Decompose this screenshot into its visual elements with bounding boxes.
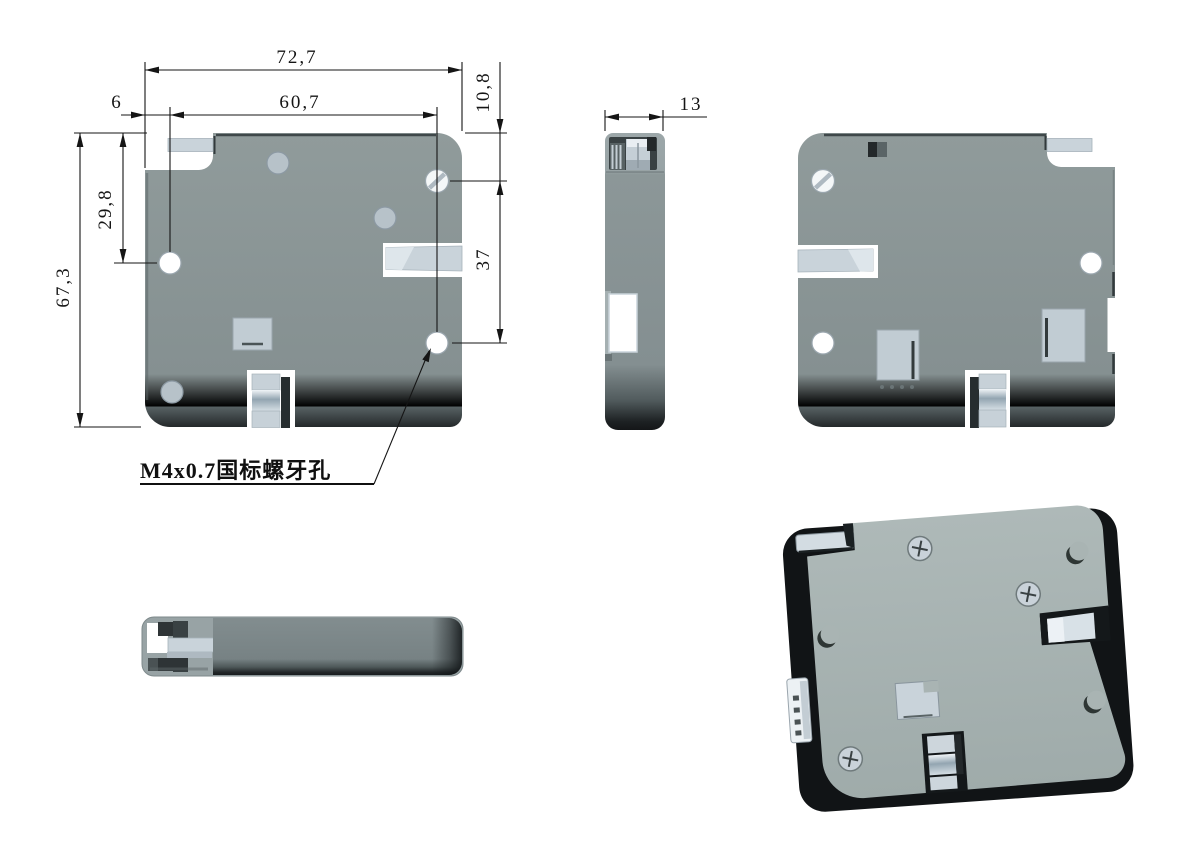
arrowhead: [497, 119, 504, 133]
solder-pad: [900, 385, 904, 389]
m4-thread-hole-lower: [812, 332, 834, 354]
m4-thread-hole: [1080, 252, 1102, 274]
solder-pad: [880, 385, 884, 389]
connector-opening: [609, 294, 637, 352]
connector-pin: [794, 719, 800, 724]
arrowhead: [120, 249, 127, 263]
arrowhead: [145, 67, 159, 74]
latch-roller: [928, 754, 956, 776]
chip-dark: [868, 142, 877, 157]
dim-text-overall-width: 72,7: [276, 47, 317, 68]
side-latch-opening: [798, 245, 878, 278]
latch-block-bottom: [979, 410, 1006, 427]
back-view: [798, 133, 1115, 432]
arrowhead: [77, 413, 84, 427]
bottom-latch: [965, 370, 1010, 432]
pcb-connector-right: [1042, 309, 1085, 362]
phillips-screw: [907, 536, 933, 562]
side-view: 13: [605, 94, 707, 430]
arrowhead: [605, 114, 619, 121]
dim-overall-height: 67,3: [53, 133, 141, 427]
pcb-connector-left: [877, 330, 919, 389]
dim-text-edge-to-hole: 6: [111, 92, 123, 113]
dim-text-13: 13: [680, 94, 703, 115]
iso-wire-connector: [787, 678, 812, 743]
arrowhead: [423, 112, 437, 119]
solder-pad: [890, 385, 894, 389]
latch-roller: [252, 390, 280, 411]
bottom-latch-bar: [970, 377, 979, 428]
boss-middle: [374, 207, 396, 229]
mechanism-notch: [647, 137, 656, 151]
dim-thickness: 13: [605, 94, 707, 131]
top-chip: [868, 142, 887, 157]
latch-tab-under: [167, 652, 212, 658]
boss-bottom: [161, 381, 183, 403]
m4-thread-hole: [159, 252, 181, 274]
engineering-drawing: 72,7 60,7 6 29,8 67,3: [0, 0, 1202, 868]
connector-pin: [794, 707, 800, 712]
arrowhead: [649, 114, 663, 121]
dim-text-hole-span: 60,7: [279, 92, 320, 113]
iso-connector: [895, 681, 940, 720]
latch-block-bottom: [252, 411, 280, 428]
lock-plate-back: [798, 133, 1115, 427]
connector-pin: [793, 695, 799, 700]
phillips-screw: [1015, 581, 1041, 607]
isometric-view: [776, 503, 1135, 814]
connector-nub: [605, 354, 612, 361]
arrowhead: [120, 133, 127, 147]
solder-pad: [910, 385, 914, 389]
boss-top: [267, 152, 289, 174]
connector-step: [923, 681, 939, 693]
arrowhead: [497, 329, 504, 343]
latch-block-top: [979, 374, 1006, 389]
phillips-screw: [838, 746, 864, 772]
arrowhead: [131, 112, 145, 119]
arrowhead: [448, 67, 462, 74]
thread-note-text: M4x0.7国标螺牙孔: [140, 458, 331, 483]
corner-tab: [168, 139, 213, 152]
arrowhead: [77, 133, 84, 147]
body-end-shade: [432, 618, 462, 675]
latch-block-top: [252, 374, 280, 390]
wire-connector: [233, 318, 272, 350]
side-body: [605, 133, 665, 430]
latch-bolt-highlight: [1047, 618, 1065, 643]
dim-text-10-8: 10,8: [473, 71, 494, 112]
side-connector-window: [605, 291, 637, 361]
latch-mechanism-top: [609, 137, 657, 170]
dim-text-67-3: 67,3: [53, 266, 74, 307]
lock-plate: [145, 133, 462, 427]
latch-roller: [979, 389, 1006, 410]
plunger-highlight: [627, 139, 647, 147]
dim-text-37: 37: [473, 248, 494, 271]
body-main: [213, 618, 462, 675]
bottom-latch: [247, 370, 295, 432]
arrowhead: [170, 112, 184, 119]
bottom-side-view: [142, 617, 463, 676]
latch-block-top: [927, 735, 955, 754]
drawing-canvas: 72,7 60,7 6 29,8 67,3: [0, 0, 1202, 868]
latch-tab: [168, 638, 214, 652]
bottom-latch-bar: [281, 377, 290, 428]
screw-head: [812, 170, 835, 193]
iso-bottom-latch: [922, 731, 968, 794]
latch-block-bottom: [930, 776, 958, 791]
side-latch-opening: [383, 243, 464, 277]
corner-tab: [1047, 139, 1092, 152]
front-view: 72,7 60,7 6 29,8 67,3: [53, 47, 507, 484]
connector-body: [1042, 309, 1085, 362]
chip-light: [877, 142, 887, 157]
dim-text-29-8: 29,8: [95, 188, 116, 229]
connector-pin: [795, 730, 801, 735]
